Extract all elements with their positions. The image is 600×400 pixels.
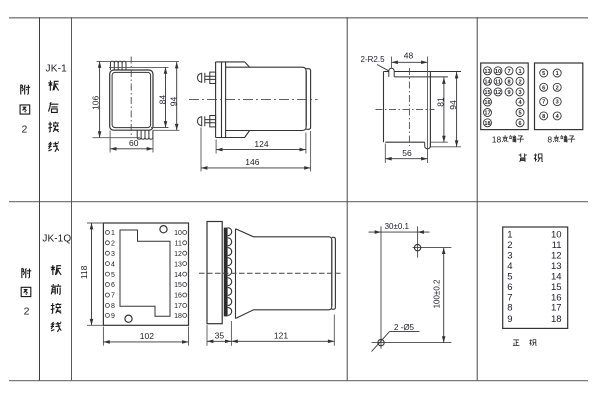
svg-text:1: 1	[518, 69, 521, 75]
svg-text:13: 13	[551, 261, 562, 272]
svg-text:18: 18	[551, 314, 562, 325]
svg-text:5: 5	[542, 71, 545, 77]
svg-text:11: 11	[175, 241, 182, 248]
svg-text:15: 15	[484, 90, 490, 96]
svg-text:60: 60	[129, 138, 139, 148]
svg-text:48: 48	[404, 50, 414, 60]
svg-text:18: 18	[174, 313, 182, 320]
svg-text:6: 6	[542, 85, 545, 91]
svg-text:15: 15	[174, 282, 182, 289]
svg-text:9: 9	[507, 314, 512, 325]
svg-text:5: 5	[518, 111, 521, 117]
svg-text:118: 118	[79, 265, 89, 279]
svg-text:7: 7	[507, 69, 510, 75]
svg-text:5: 5	[111, 272, 115, 279]
svg-text:JK-1: JK-1	[46, 64, 68, 75]
svg-text:30±0.1: 30±0.1	[385, 222, 410, 231]
svg-text:2: 2	[24, 306, 30, 318]
svg-text:121: 121	[274, 331, 288, 341]
svg-text:9: 9	[507, 90, 510, 96]
svg-text:3: 3	[507, 250, 512, 261]
svg-text:102: 102	[140, 331, 154, 341]
svg-text:18: 18	[484, 121, 490, 127]
svg-text:13: 13	[484, 69, 490, 75]
svg-text:3: 3	[518, 90, 521, 96]
svg-text:3: 3	[556, 100, 559, 106]
svg-text:10: 10	[174, 230, 182, 237]
svg-text:2: 2	[518, 79, 521, 85]
svg-text:6: 6	[507, 282, 512, 293]
svg-text:8: 8	[542, 114, 545, 120]
svg-text:14: 14	[551, 271, 562, 282]
svg-text:10: 10	[551, 229, 562, 240]
svg-text:17: 17	[484, 111, 490, 117]
svg-text:8: 8	[111, 303, 115, 310]
svg-text:8: 8	[547, 134, 552, 144]
svg-text:1: 1	[111, 230, 115, 237]
svg-text:14: 14	[484, 79, 491, 85]
svg-text:146: 146	[245, 157, 259, 167]
svg-text:16: 16	[551, 292, 562, 303]
svg-text:10: 10	[495, 69, 501, 75]
svg-text:2: 2	[556, 85, 559, 91]
svg-text:2: 2	[111, 241, 115, 248]
svg-text:6: 6	[111, 282, 115, 289]
svg-text:15: 15	[551, 282, 562, 293]
svg-text:94: 94	[169, 97, 179, 107]
svg-text:3: 3	[111, 251, 115, 258]
svg-text:2 -Ø5: 2 -Ø5	[394, 323, 415, 332]
svg-text:17: 17	[174, 303, 182, 310]
svg-text:7: 7	[542, 100, 545, 106]
svg-text:81: 81	[435, 97, 445, 107]
svg-text:5: 5	[507, 271, 512, 282]
svg-text:16: 16	[174, 293, 182, 300]
svg-text:84: 84	[158, 95, 168, 105]
svg-text:8: 8	[507, 303, 512, 314]
svg-text:9: 9	[111, 313, 115, 320]
svg-text:13: 13	[174, 261, 182, 268]
svg-text:12: 12	[174, 251, 182, 258]
svg-text:56: 56	[402, 148, 412, 158]
svg-text:1: 1	[556, 71, 559, 77]
svg-text:2: 2	[507, 240, 512, 251]
svg-text:7: 7	[111, 293, 115, 300]
svg-text:1: 1	[507, 229, 512, 240]
svg-text:12: 12	[551, 250, 562, 261]
svg-text:11: 11	[495, 79, 501, 85]
svg-text:124: 124	[254, 139, 268, 149]
svg-text:106: 106	[90, 96, 100, 110]
svg-text:94: 94	[448, 100, 458, 110]
svg-text:JK-1Q: JK-1Q	[42, 233, 71, 244]
svg-text:35: 35	[215, 331, 225, 341]
svg-text:6: 6	[518, 121, 521, 127]
svg-text:2-R2.5: 2-R2.5	[361, 55, 386, 64]
svg-text:2: 2	[21, 123, 27, 135]
svg-text:17: 17	[551, 303, 562, 314]
svg-text:100±0.2: 100±0.2	[433, 279, 442, 308]
svg-text:8: 8	[507, 79, 510, 85]
svg-text:4: 4	[507, 261, 512, 272]
svg-text:4: 4	[111, 261, 115, 268]
svg-text:7: 7	[507, 292, 512, 303]
svg-text:11: 11	[552, 240, 562, 251]
svg-text:18: 18	[492, 134, 502, 144]
svg-text:12: 12	[495, 90, 501, 96]
svg-text:16: 16	[484, 100, 490, 106]
svg-text:14: 14	[174, 272, 182, 279]
